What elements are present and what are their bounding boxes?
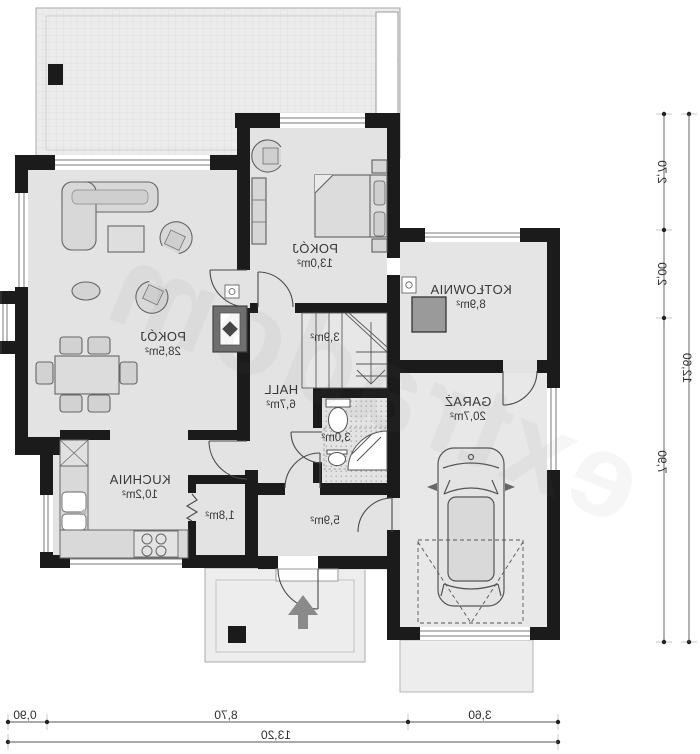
terrace-side-strip (376, 12, 398, 118)
pouf (72, 282, 100, 300)
room-label-bathroom-area: 3,0m² (321, 432, 351, 444)
room-label-boiler-area: 8,9m² (456, 299, 486, 311)
floor-plan-drawing: extradom POKÓJ 28,5m² POKÓJ 13,0m² KOTŁO… (0, 0, 700, 754)
dim-right-total: 12,60 (680, 353, 694, 383)
kitchen-sink (62, 492, 87, 530)
dim-bottom-2: 8,70 (214, 708, 238, 722)
garage-door-opening (420, 627, 530, 640)
window-living-west (15, 193, 28, 287)
room-label-bedroom-area: 13,0m² (297, 258, 333, 270)
double-bed (315, 175, 387, 237)
armchair (252, 140, 281, 172)
room-label-stairs-area: 3,9m² (310, 332, 340, 344)
dim-right-2: 2,00 (655, 262, 669, 286)
wardrobe (252, 178, 266, 244)
room-label-living-area: 28,5m² (145, 346, 181, 358)
dim-bottom-3: 3,60 (468, 708, 492, 722)
porch-column (228, 626, 246, 643)
terrace-column (48, 64, 63, 85)
room-label-living-name: POKÓJ (140, 329, 186, 344)
nightstand (372, 239, 387, 252)
window-bedroom-north (280, 113, 365, 128)
window-boiler-north (425, 228, 520, 242)
room-label-kitchen-name: KUCHNIA (109, 472, 170, 487)
dim-bottom-total: 13,20 (261, 728, 291, 742)
room-label-hall-area: 6,7m² (266, 399, 296, 411)
fridge (60, 440, 88, 466)
dim-right-3: 7,90 (655, 450, 669, 474)
room-label-garage-name: GARAŻ (445, 394, 492, 409)
room-label-boiler-name: KOTŁOWNIA (430, 282, 512, 297)
nightstand (372, 160, 387, 173)
chimney-symbol (402, 277, 416, 293)
window-bay-west (0, 304, 10, 341)
floor-plan-canvas: extradom POKÓJ 28,5m² POKÓJ 13,0m² KOTŁO… (0, 0, 700, 754)
room-label-hall-name: HALL (264, 382, 298, 397)
wall-niche (387, 258, 400, 275)
room-label-kitchen-area: 10,2m² (122, 489, 158, 501)
stove (134, 531, 178, 557)
entrance-step (276, 569, 338, 581)
dim-bottom-1: 0,90 (13, 708, 37, 722)
boiler (412, 297, 446, 332)
room-label-pantry-area: 1,8m² (205, 510, 235, 522)
window-kitchen-west (40, 495, 53, 552)
driveway (400, 640, 533, 692)
dim-right-1: 2,70 (655, 160, 669, 184)
room-label-bedroom-name: POKÓJ (292, 241, 338, 256)
room-label-vestibule-area: 5,9m² (310, 515, 340, 527)
entrance-porch (205, 568, 365, 662)
room-label-garage-area: 20,7m² (450, 411, 486, 423)
washbasin (327, 450, 347, 466)
window-living-north (55, 155, 210, 170)
dining-table (55, 356, 119, 394)
